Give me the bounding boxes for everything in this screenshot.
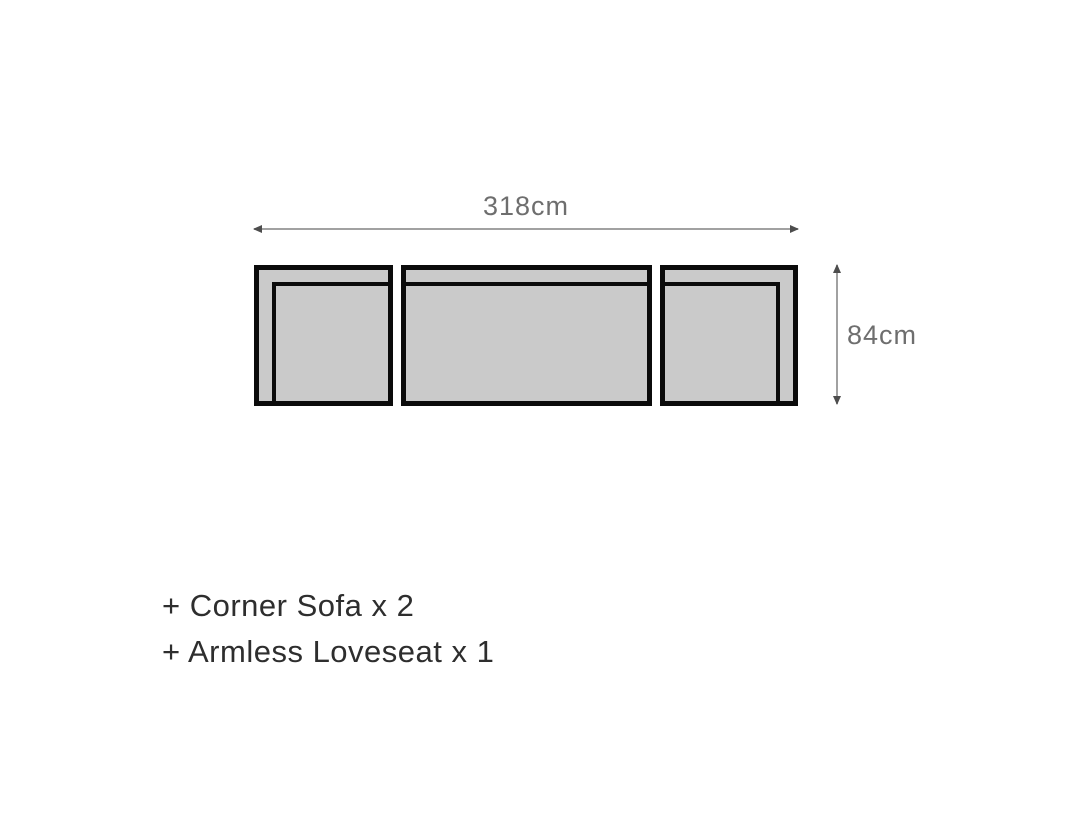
height-dimension-arrow	[836, 265, 838, 404]
arrow-down-cap-icon	[833, 396, 841, 405]
width-dimension-arrow	[254, 228, 798, 230]
arrow-left-cap-icon	[253, 225, 262, 233]
arrow-right-cap-icon	[790, 225, 799, 233]
arrow-up-cap-icon	[833, 264, 841, 273]
width-dimension-label: 318cm	[254, 191, 798, 222]
list-item: + Corner Sofa x 2	[162, 583, 494, 629]
armless-loveseat-shape	[401, 265, 652, 406]
included-items-list: + Corner Sofa x 2 + Armless Loveseat x 1	[162, 583, 494, 675]
corner-sofa-right-seat	[665, 282, 780, 401]
list-item: + Armless Loveseat x 1	[162, 629, 494, 675]
armless-loveseat-seat	[406, 282, 647, 401]
corner-sofa-left-shape	[254, 265, 393, 406]
corner-sofa-left-seat	[272, 282, 388, 401]
height-dimension-label: 84cm	[847, 320, 917, 351]
product-dimension-diagram: 318cm 84cm + Corner Sofa x 2 + Armless L…	[0, 0, 1080, 831]
corner-sofa-right-shape	[660, 265, 798, 406]
